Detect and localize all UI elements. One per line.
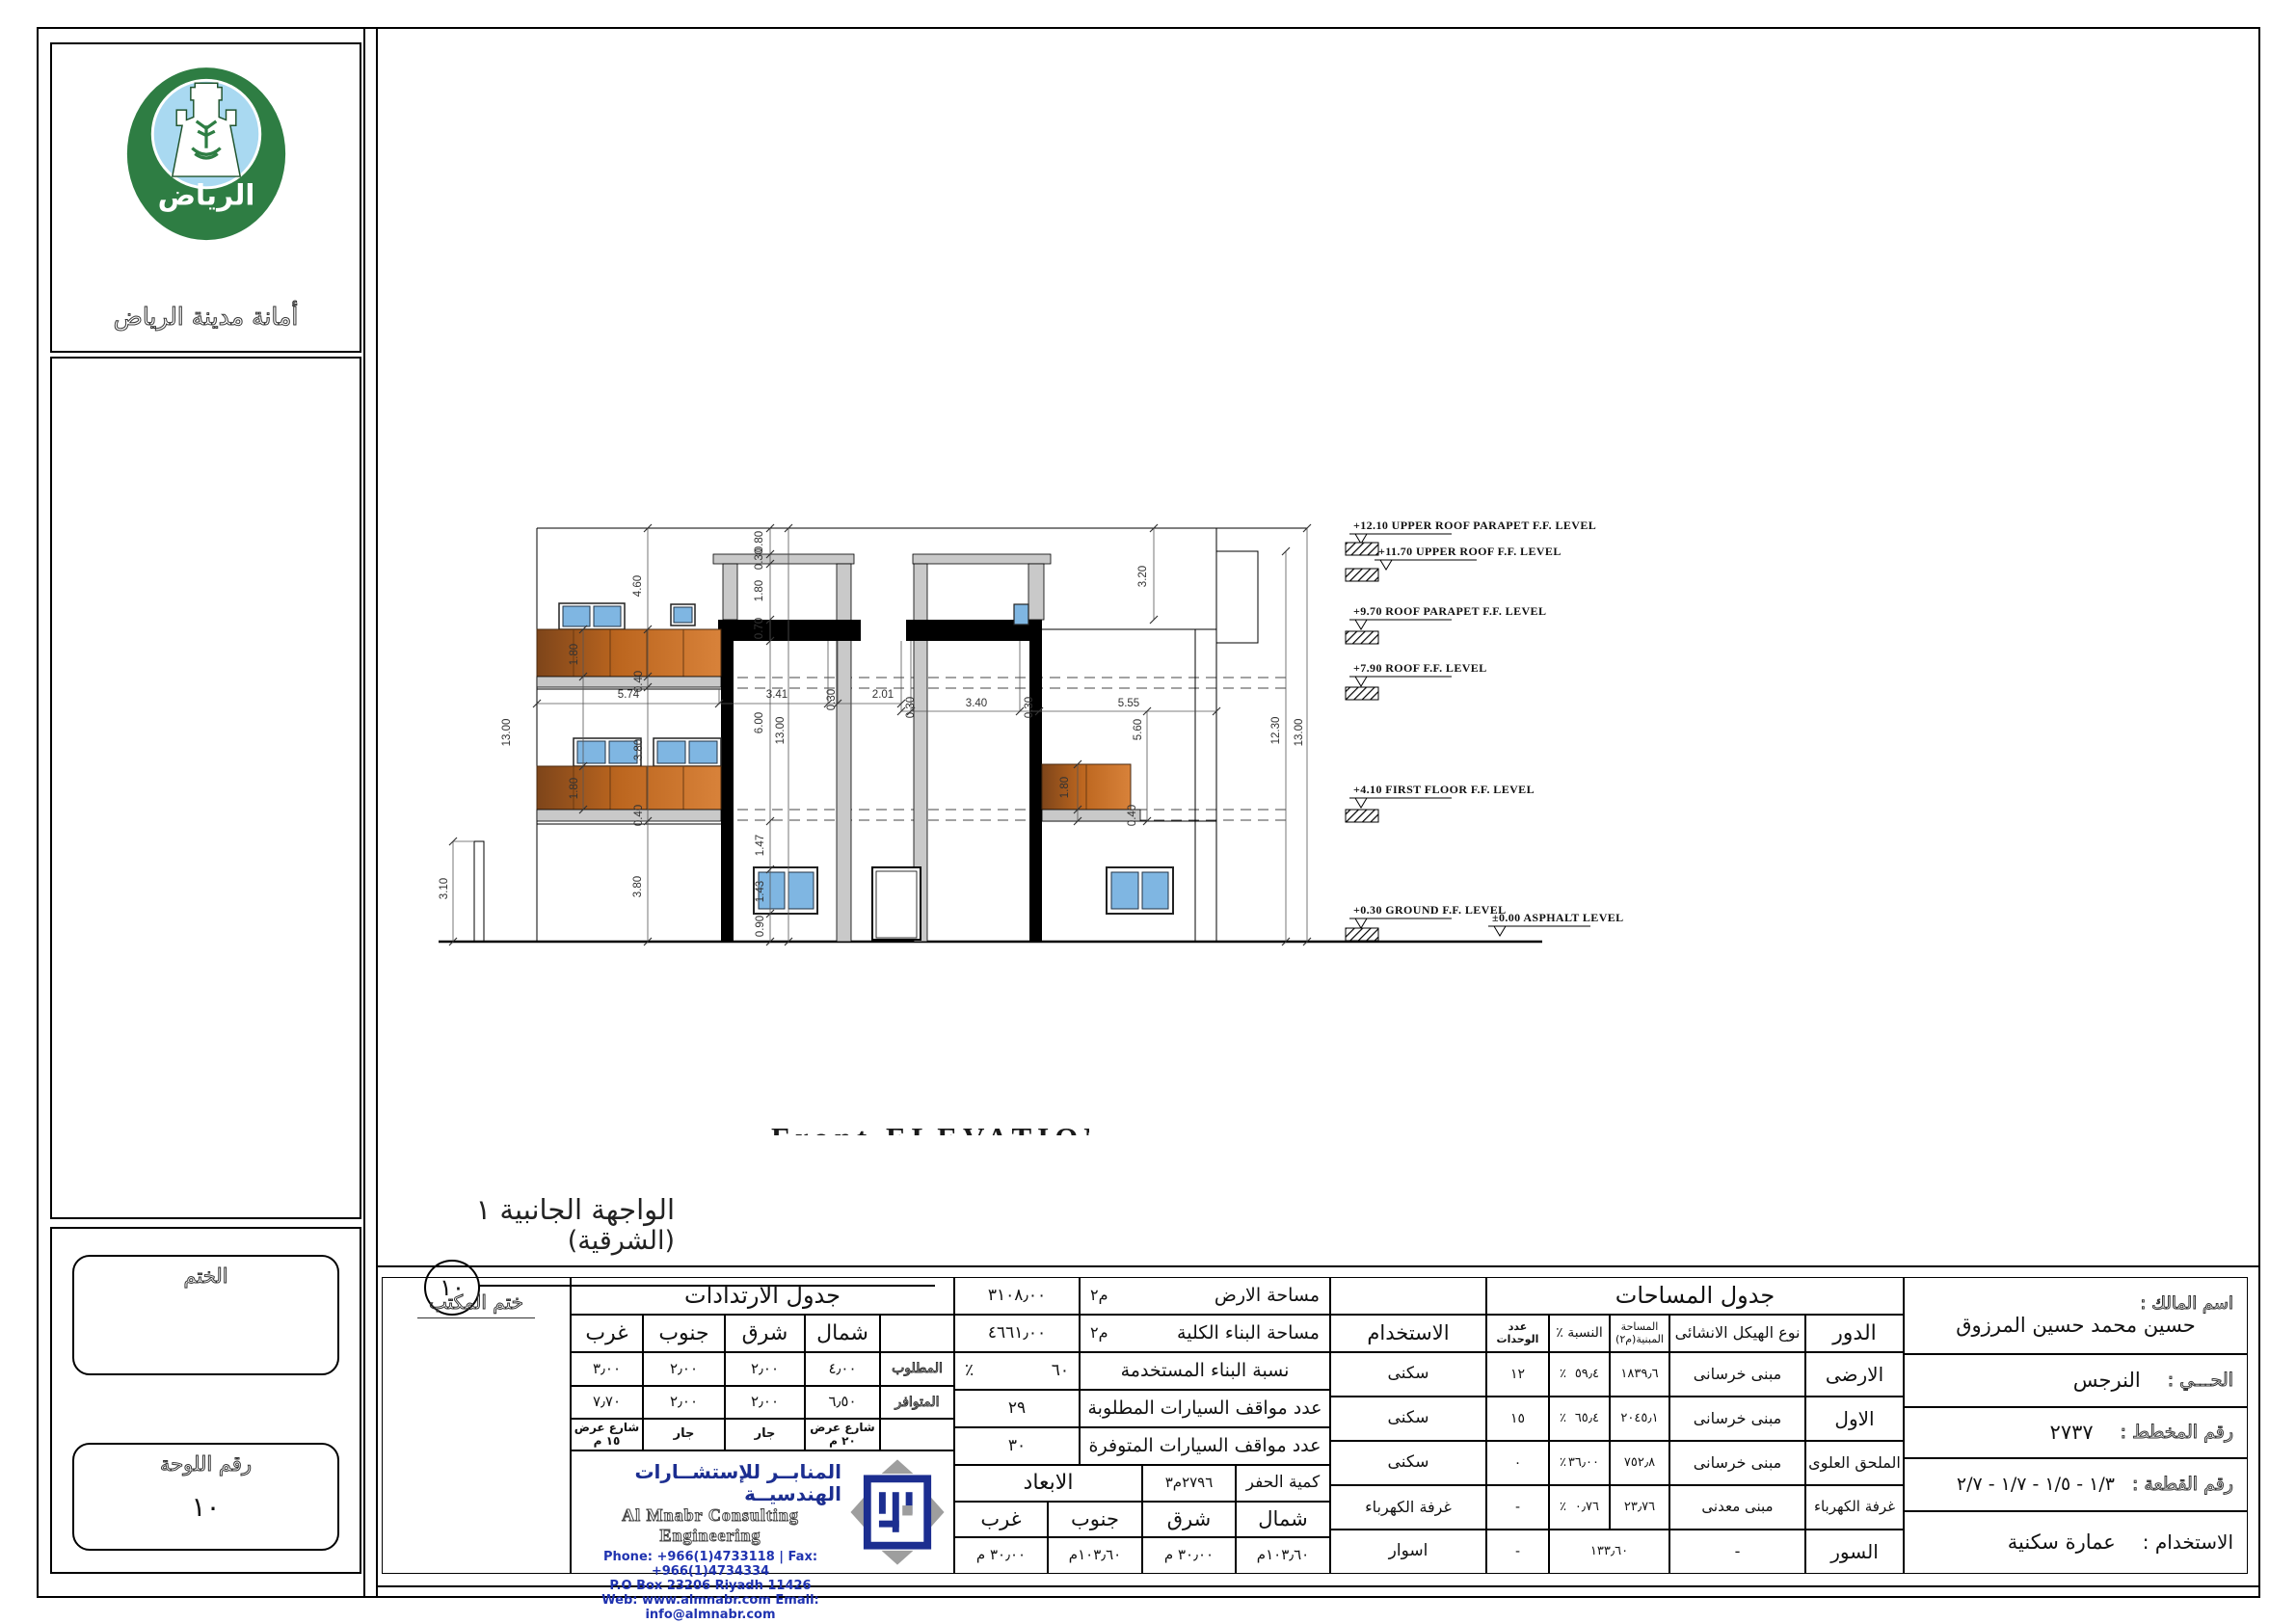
sidebar-stamps-box: الختم رقم اللوحة ١٠ <box>50 1227 361 1574</box>
dimension-label: 13.00 <box>501 719 513 747</box>
info-owner: اسم المالك : حسين محمد حسين المرزوق <box>1904 1277 2248 1354</box>
info-plot-number: رقم القطعة : ١/٣ - ١/٥ - ١/٧ - ٢/٧ <box>1904 1458 2248 1511</box>
ratio-value: ٦٠ ٪ <box>954 1352 1080 1390</box>
setbacks-required-south: ٢٫٠٠ <box>643 1352 725 1386</box>
setbacks-header-west: غرب <box>571 1315 643 1352</box>
dimension-label: 0.70 <box>754 618 765 639</box>
company-address: P.O Box 23206 Riyadh 11426 <box>579 1580 841 1594</box>
areas-r4-structure: - <box>1669 1530 1805 1574</box>
setbacks-available-east: ٢٫٠٠ <box>725 1386 805 1419</box>
dim-value-west: ٣٠٫٠٠ م <box>954 1537 1048 1574</box>
office-stamp-cell: ختم المكتب <box>382 1277 571 1574</box>
areas-r1-structure: مبنى خرسانى <box>1669 1397 1805 1441</box>
pct-number: ٦٥٫٤ <box>1575 1412 1599 1426</box>
ratio-number: ٦٠ <box>1052 1362 1069 1381</box>
info-usage: الاستخدام : عمارة سكنية <box>1904 1511 2248 1574</box>
build-area-row: مساحة البناء الكلية م٢ <box>1080 1315 1330 1352</box>
usage-header: الاستخدام <box>1330 1315 1486 1352</box>
info-district-label: الحـــي : <box>2168 1370 2233 1392</box>
areas-r3-structure: مبنى معدنى <box>1669 1485 1805 1530</box>
areas-r0-pct: ٥٩٫٤٪ <box>1549 1352 1610 1397</box>
level-annotation: +9.70 ROOF PARAPET F.F. LEVEL <box>1353 604 1546 618</box>
areas-r1-pct: ٦٥٫٤٪ <box>1549 1397 1610 1441</box>
roof-floor-balcony <box>537 603 1028 687</box>
company-name-en: Al Mnabr Consulting Engineering <box>579 1505 841 1545</box>
areas-r1-floor: الاول <box>1805 1397 1904 1441</box>
level-annotation: ±0.00 ASPHALT LEVEL <box>1492 911 1624 924</box>
dimension-label: 0.30 <box>905 697 917 718</box>
setbacks-available-north: ٦٫٥٠ <box>805 1386 880 1419</box>
percent-sign: ٪ <box>1560 1412 1566 1426</box>
info-district-value: النرجس <box>2073 1369 2141 1392</box>
slab-dashed-lines <box>737 678 1286 820</box>
elevation-caption: Front ELEVATION <box>771 1121 1089 1135</box>
areas-r2-units: ٠ <box>1486 1441 1549 1485</box>
areas-r0-units: ١٢ <box>1486 1352 1549 1397</box>
setbacks-available-label: المتوافر <box>880 1386 954 1419</box>
usage-empty-cell <box>1330 1277 1486 1315</box>
dimension-label: 5.60 <box>1133 719 1144 740</box>
dimension-label: 4.60 <box>632 575 644 597</box>
dimension-label: 13.00 <box>775 717 787 745</box>
municipality-name: أمانة مدينة الرياض <box>52 303 360 331</box>
sidebar-empty-box <box>50 357 361 1219</box>
land-area-row: مساحة الارض م٢ <box>1080 1277 1330 1315</box>
areas-r4-units: - <box>1486 1530 1549 1574</box>
dimension-label: 1.47 <box>755 835 766 856</box>
dimension-label: 0.40 <box>1127 805 1138 826</box>
land-area-label: مساحة الارض <box>1215 1286 1320 1307</box>
dimension-label: 0.30 <box>1024 697 1035 718</box>
setbacks-boundary-south: جار <box>643 1419 725 1450</box>
setbacks-boundary-west: شارع عرض ١٥ م <box>571 1419 643 1450</box>
info-plot-label: رقم القطعة : <box>2132 1475 2233 1496</box>
dimension-label: 12.30 <box>1270 717 1282 745</box>
dimension-label: 0.40 <box>633 805 645 826</box>
usage-row-4: اسوار <box>1330 1530 1486 1574</box>
areas-title: جدول المساحات <box>1486 1277 1904 1315</box>
dimension-label: 1.43 <box>755 881 766 902</box>
dimension-label: 3.80 <box>633 739 645 760</box>
areas-r3-units: - <box>1486 1485 1549 1530</box>
parking-available-label: عدد مواقف السيارات المتوفرة <box>1080 1427 1330 1465</box>
dim-header-west: غرب <box>954 1502 1048 1537</box>
info-owner-label: اسم المالك : <box>1905 1294 2247 1315</box>
pct-number: ٠٫٧٦ <box>1575 1501 1599 1515</box>
areas-r2-structure: مبنى خرسانى <box>1669 1441 1805 1485</box>
dimension-label: 1.80 <box>569 778 580 799</box>
areas-header-area: المساحة المبنية(م٢) <box>1610 1315 1669 1352</box>
level-annotation: +12.10 UPPER ROOF PARAPET F.F. LEVEL <box>1353 519 1596 532</box>
dimension-label: 2.01 <box>872 689 894 701</box>
view-title-line1: الواجهة الجانبية ١ <box>405 1193 675 1226</box>
dimension-label: 3.40 <box>966 698 987 709</box>
setbacks-header-empty <box>880 1315 954 1352</box>
areas-r0-floor: الارضى <box>1805 1352 1904 1397</box>
areas-r1-area: ٢٠٤٥٫١ <box>1610 1397 1669 1441</box>
setbacks-available-west: ٧٫٧٠ <box>571 1386 643 1419</box>
info-plot-value: ١/٣ - ١/٥ - ١/٧ - ٢/٧ <box>1957 1475 2115 1496</box>
areas-header-units: عدد الوحدات <box>1486 1315 1549 1352</box>
dimension-label: 3.41 <box>766 689 788 701</box>
setbacks-boundary-east: جار <box>725 1419 805 1450</box>
parking-available-value: ٣٠ <box>954 1427 1080 1465</box>
setbacks-header-east: شرق <box>725 1315 805 1352</box>
areas-header-structure: نوع الهيكل الانشائى <box>1669 1315 1805 1352</box>
ground-floor-openings <box>754 867 1173 940</box>
dimension-label: 5.55 <box>1118 698 1139 709</box>
usage-row-1: سكنى <box>1330 1397 1486 1441</box>
setbacks-title: جدول الارتدادات <box>571 1277 954 1315</box>
elevation-drawing: 5.743.412.013.405.553.1013.004.601.800.4… <box>424 501 1677 983</box>
usage-row-0: سكنى <box>1330 1352 1486 1397</box>
setbacks-available-south: ٢٫٠٠ <box>643 1386 725 1419</box>
dimension-label: 6.00 <box>754 712 765 733</box>
info-plan-number: رقم المخطط : ٢٧٣٧ <box>1904 1407 2248 1458</box>
areas-header-pct: النسبة ٪ <box>1549 1315 1610 1352</box>
dimension-label: 3.80 <box>632 876 644 897</box>
info-usage-value: عمارة سكنية <box>2008 1530 2116 1554</box>
setbacks-required-east: ٢٫٠٠ <box>725 1352 805 1386</box>
setbacks-required-label: المطلوب <box>880 1352 954 1386</box>
areas-r0-structure: مبنى خرسانى <box>1669 1352 1805 1397</box>
dim-header-north: شمال <box>1236 1502 1330 1537</box>
excavation-value: ٢٧٩٦م٣ <box>1142 1465 1236 1502</box>
dimension-label: 13.00 <box>1294 719 1305 747</box>
parking-required-value: ٢٩ <box>954 1390 1080 1427</box>
parking-required-label: عدد مواقف السيارات المطلوبة <box>1080 1390 1330 1427</box>
level-annotation: +4.10 FIRST FLOOR F.F. LEVEL <box>1353 783 1535 796</box>
office-stamp-label: ختم المكتب <box>417 1291 535 1318</box>
company-web: Web: www.almnabr.com Email: info@almnabr… <box>579 1594 841 1623</box>
areas-r2-pct: ٣٦٫٠٠٪ <box>1549 1441 1610 1485</box>
view-title-line2: (الشرقية) <box>405 1226 675 1256</box>
areas-r1-units: ١٥ <box>1486 1397 1549 1441</box>
dim-header-south: جنوب <box>1048 1502 1142 1537</box>
riyadh-municipality-logo: الرياض <box>121 58 291 258</box>
dimensions-title: الابعاد <box>954 1465 1142 1502</box>
view-title: الواجهة الجانبية ١ (الشرقية) <box>405 1193 675 1256</box>
stamp-area: الختم <box>72 1255 339 1375</box>
areas-r3-floor: غرفة الكهرباء <box>1805 1485 1904 1530</box>
stamp-label: الختم <box>74 1264 337 1288</box>
setbacks-required-north: ٤٫٠٠ <box>805 1352 880 1386</box>
dim-value-north: ١٠٣٫٦٠م <box>1236 1537 1330 1574</box>
info-plan-value: ٢٧٣٧ <box>2050 1421 2094 1444</box>
svg-text:الرياض: الرياض <box>158 178 255 211</box>
level-annotation: +7.90 ROOF F.F. LEVEL <box>1353 661 1487 675</box>
dim-value-south: ١٠٣٫٦٠م <box>1048 1537 1142 1574</box>
build-area-label: مساحة البناء الكلية <box>1177 1323 1320 1344</box>
sheet-number-label: رقم اللوحة <box>74 1452 337 1476</box>
areas-header-floor: الدور <box>1805 1315 1904 1352</box>
build-area-value: ٤٦٦١٫٠٠ <box>954 1315 1080 1352</box>
dimension-label: 3.20 <box>1137 566 1149 587</box>
land-area-unit: م٢ <box>1090 1287 1108 1304</box>
elevation-caption-text: Front ELEVATION <box>771 1121 1089 1135</box>
pct-number: ٥٩٫٤ <box>1575 1368 1599 1382</box>
percent-sign: ٪ <box>965 1362 974 1381</box>
setbacks-boundary-empty <box>880 1419 954 1450</box>
dimension-label: 1.80 <box>569 644 580 665</box>
company-name-ar: المنابــر للإستشــارات الهندسيــة <box>579 1461 841 1505</box>
ratio-label: نسبة البناء المستخدمة <box>1080 1352 1330 1390</box>
setbacks-header-north: شمال <box>805 1315 880 1352</box>
sidebar-logo-box: الرياض أمانة مدينة الرياض <box>50 42 361 353</box>
setbacks-boundary-north: شارع عرض ٢٠ م <box>805 1419 880 1450</box>
info-owner-value: حسين محمد حسين المرزوق <box>1905 1314 2247 1337</box>
info-district: الحـــي : النرجس <box>1904 1354 2248 1407</box>
company-block: المنابــر للإستشــارات الهندسيــة Al Mna… <box>571 1450 954 1574</box>
areas-r3-area: ٢٣٫٧٦ <box>1610 1485 1669 1530</box>
dimension-label: 1.80 <box>754 580 765 601</box>
dimension-label: 3.10 <box>439 878 450 899</box>
areas-r4-floor: السور <box>1805 1530 1904 1574</box>
dimension-label: 0.30 <box>754 548 765 570</box>
dimension-label: 0.90 <box>755 916 766 937</box>
sheet-number-value: ١٠ <box>74 1491 337 1523</box>
almnabr-logo <box>847 1454 948 1570</box>
dim-value-east: ٣٠٫٠٠ م <box>1142 1537 1236 1574</box>
usage-row-2: سكنى <box>1330 1441 1486 1485</box>
company-phone: Phone: +966(1)4733118 | Fax: +966(1)4734… <box>579 1551 841 1580</box>
dimension-label: 0.40 <box>633 671 645 692</box>
setbacks-required-west: ٣٫٠٠ <box>571 1352 643 1386</box>
level-annotation: +0.30 GROUND F.F. LEVEL <box>1353 903 1507 917</box>
sheet-number-area: رقم اللوحة ١٠ <box>72 1443 339 1551</box>
percent-sign: ٪ <box>1560 1501 1566 1515</box>
info-plan-label: رقم المخطط : <box>2121 1423 2233 1444</box>
setbacks-header-south: جنوب <box>643 1315 725 1352</box>
areas-r2-area: ٧٥٢٫٨ <box>1610 1441 1669 1485</box>
percent-sign: ٪ <box>1560 1368 1566 1382</box>
level-annotations: +12.10 UPPER ROOF PARAPET F.F. LEVEL+11.… <box>1346 519 1624 941</box>
drawing-sheet: الرياض أمانة مدينة الرياض الختم رقم اللو… <box>0 0 2296 1623</box>
land-area-value: ٣١٠٨٫٠٠ <box>954 1277 1080 1315</box>
info-usage-label: الاستخدام : <box>2143 1531 2233 1554</box>
titleblock-top-rule <box>376 1265 2260 1267</box>
pct-number: ٣٦٫٠٠ <box>1568 1456 1599 1471</box>
divider-line <box>363 27 365 1598</box>
divider-line <box>376 27 378 1598</box>
build-area-unit: م٢ <box>1090 1324 1108 1342</box>
usage-row-3: غرفة الكهرباء <box>1330 1485 1486 1530</box>
level-annotation: +11.70 UPPER ROOF F.F. LEVEL <box>1378 545 1562 558</box>
excavation-label: كمية الحفر <box>1236 1465 1330 1502</box>
areas-r3-pct: ٠٫٧٦٪ <box>1549 1485 1610 1530</box>
percent-sign: ٪ <box>1560 1456 1566 1471</box>
areas-r2-floor: الملحق العلوى <box>1805 1441 1904 1485</box>
dimension-label: 1.80 <box>1059 777 1071 798</box>
areas-r0-area: ١٨٣٩٫٦ <box>1610 1352 1669 1397</box>
dim-header-east: شرق <box>1142 1502 1236 1537</box>
building-outline <box>439 528 1542 942</box>
areas-r4-area-merged: ١٣٣٫٦٠ <box>1549 1530 1669 1574</box>
dimension-label: 0.30 <box>826 689 838 710</box>
